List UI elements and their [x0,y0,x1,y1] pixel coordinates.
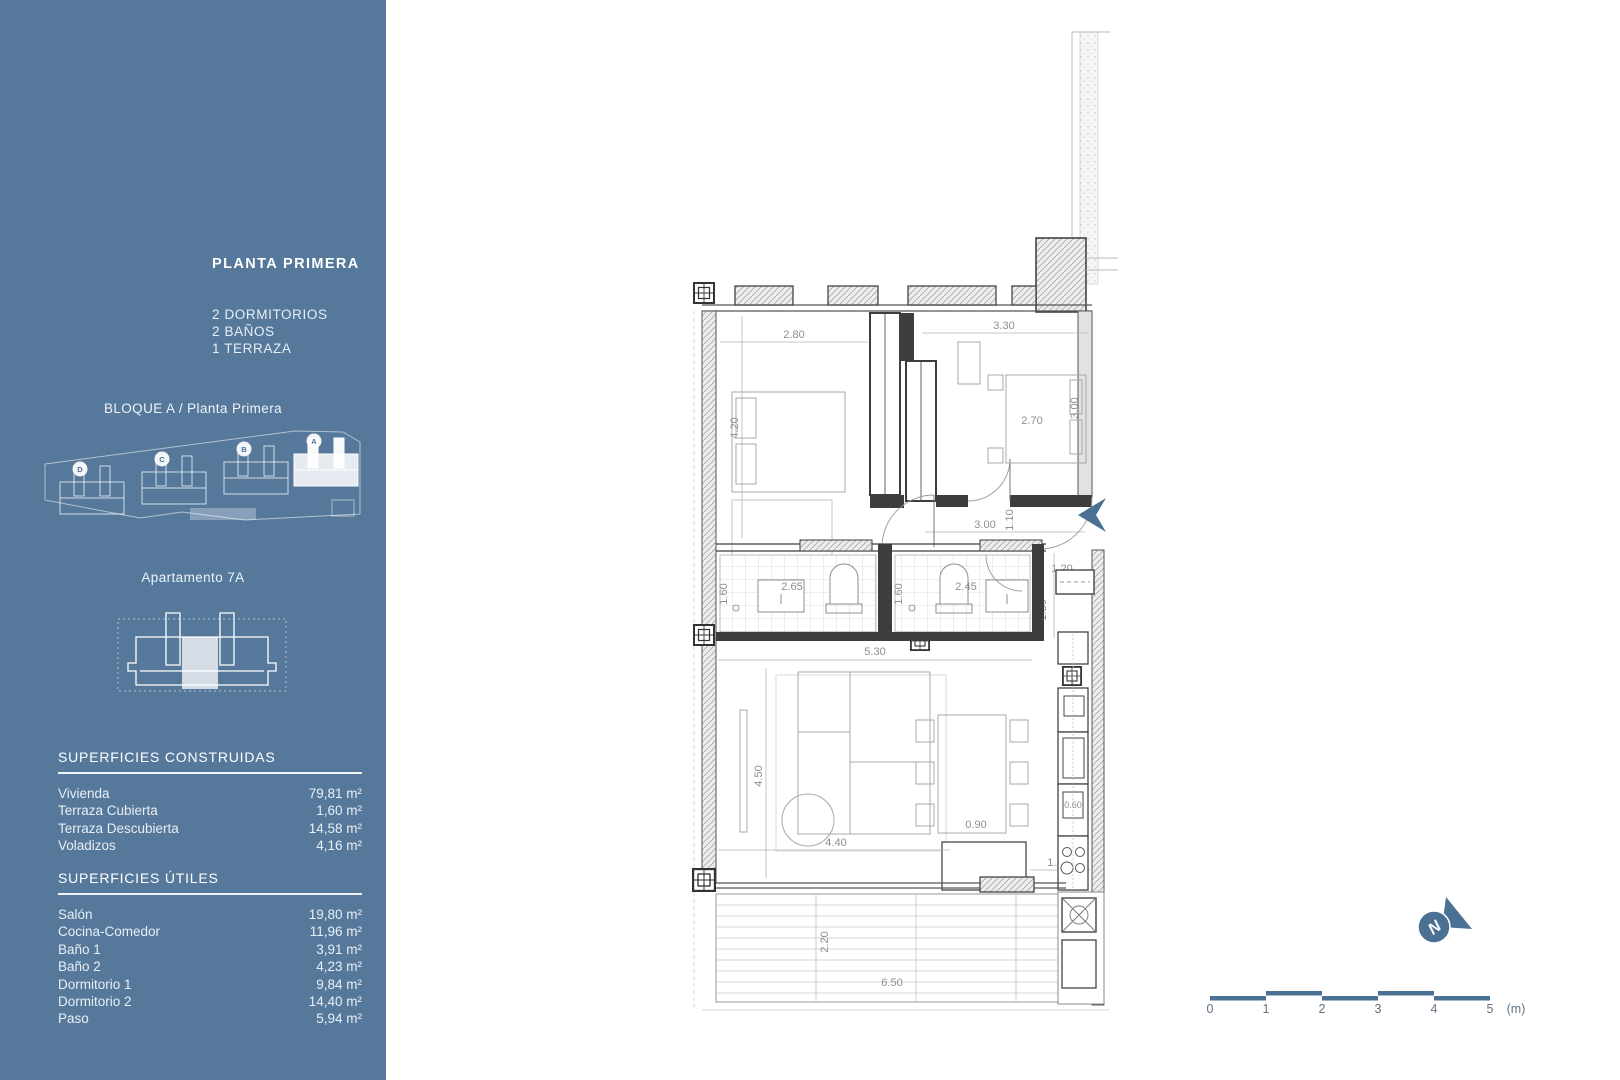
table-row: Terraza Descubierta 14,58 m² [58,820,362,837]
scale-tick: 2 [1319,1002,1326,1016]
north-compass-icon: N [1408,893,1480,955]
page-title: PLANTA PRIMERA [212,256,360,272]
dimension-label: 1.60 [893,583,905,604]
site-block-a-highlight [294,438,358,486]
highlighted-unit [182,637,218,689]
bathroom-2: 1.60 2.45 [892,540,1044,641]
rug [776,675,946,851]
scale-tick: 4 [1431,1002,1438,1016]
site-block-c [142,456,206,504]
row-label: Terraza Descubierta [58,820,179,837]
dimension-label: 6.50 [881,977,902,989]
dimension-label: 3.00 [974,519,995,531]
info-panel: PLANTA PRIMERA 2 DORMITORIOS 2 BAÑOS 1 T… [0,0,386,1080]
table-row: Baño 2 4,23 m² [58,958,362,975]
table-row: Salón 19,80 m² [58,906,362,923]
dimension-label: 4.40 [825,837,846,849]
block-label: BLOQUE A / Planta Primera [20,401,366,416]
table-row: Paso 5,94 m² [58,1010,362,1027]
table-row: Vivienda 79,81 m² [58,785,362,802]
feature-terrace: 1 TERRAZA [212,340,328,357]
site-badge-c-letter: C [159,455,165,464]
junction-box-icon [1063,667,1081,685]
row-value: 14,58 m² [309,820,362,837]
dimension-label: 2.20 [819,931,831,952]
row-value: 11,96 m² [310,923,362,940]
dimension-label: 3.00 [1069,397,1081,418]
dimension-label: 4.20 [729,417,741,438]
table-row: Cocina-Comedor 11,96 m² [58,923,362,940]
row-label: Terraza Cubierta [58,802,158,819]
apartment-label: Apartamento 7A [20,570,366,585]
sofa [798,672,930,834]
junction-box-icon [694,283,714,303]
feature-list: 2 DORMITORIOS 2 BAÑOS 1 TERRAZA [212,306,328,357]
site-key-plan: D C B A [40,420,370,528]
floor-plan: 2.80 4.20 [680,20,1140,1015]
site-annex [332,500,354,516]
scale-tick: 3 [1375,1002,1382,1016]
dimension-label: 2.45 [955,581,976,593]
toilet [830,564,858,604]
door-arc [968,459,1010,501]
scale-bar: 0 1 2 3 4 5 (m) [1210,988,1530,1018]
surfaces-useful-section: SUPERFICIES ÚTILES Salón 19,80 m² Cocina… [58,870,362,1028]
site-badge-b-letter: B [241,445,247,454]
surfaces-built-heading: SUPERFICIES CONSTRUIDAS [58,749,362,774]
row-label: Voladizos [58,837,116,854]
scale-tick: 5 [1487,1002,1494,1016]
scale-tick: 0 [1207,1002,1214,1016]
junction-box-icon [694,625,714,645]
dimension-label: 4.50 [753,765,765,786]
scale-tick: 1 [1263,1002,1270,1016]
row-value: 4,16 m² [316,837,362,854]
dimension-label: 2.80 [783,329,804,341]
row-label: Baño 2 [58,958,101,975]
dimension-label: 0.90 [965,819,986,831]
bedroom-2: 3.30 2.70 3.00 [922,320,1092,507]
dimension-label: 0.60 [1064,800,1082,810]
scale-unit: (m) [1507,1002,1526,1016]
row-label: Dormitorio 2 [58,993,132,1010]
feature-bedrooms: 2 DORMITORIOS [212,306,328,323]
terrace: 2.20 6.50 [702,877,1110,1010]
surfaces-useful-table: Salón 19,80 m² Cocina-Comedor 11,96 m² B… [58,906,362,1028]
feature-bathrooms: 2 BAÑOS [212,323,328,340]
dimension-label: 1.10 [1004,509,1016,530]
scale-bar-segments [1210,988,1524,1002]
wardrobe-partition [870,313,936,508]
apartment-key-plan [110,593,295,698]
scale-labels: 0 1 2 3 4 5 (m) [1210,1002,1524,1018]
row-label: Vivienda [58,785,110,802]
row-label: Paso [58,1010,89,1027]
surfaces-built-section: SUPERFICIES CONSTRUIDAS Vivienda 79,81 m… [58,749,362,855]
dimension-label: 3.30 [993,320,1014,332]
terrace-pillar [980,877,1034,892]
row-value: 9,84 m² [316,976,362,993]
dimension-label: 1.60 [718,583,730,604]
site-block-d [60,466,124,514]
row-label: Baño 1 [58,941,101,958]
floorplan-page: PLANTA PRIMERA 2 DORMITORIOS 2 BAÑOS 1 T… [0,0,1620,1080]
dimension-label: 5.30 [864,646,885,658]
table-row: Voladizos 4,16 m² [58,837,362,854]
living-room: 5.30 4.50 0.90 4.40 1.20 [718,646,1090,890]
table-row: Dormitorio 1 9,84 m² [58,976,362,993]
table-row: Dormitorio 2 14,40 m² [58,993,362,1010]
row-value: 3,91 m² [316,941,362,958]
dimension-label: 2.65 [781,581,802,593]
row-value: 1,60 m² [316,802,362,819]
site-pool [190,508,256,520]
site-block-b [224,446,288,494]
row-label: Cocina-Comedor [58,923,160,940]
surfaces-useful-heading: SUPERFICIES ÚTILES [58,870,362,895]
stair-core-block [1036,238,1118,312]
row-value: 79,81 m² [309,785,362,802]
row-label: Salón [58,906,93,923]
site-badge-a-letter: A [311,437,317,446]
row-value: 14,40 m² [309,993,362,1010]
junction-box-icon [693,869,715,891]
table-row: Baño 1 3,91 m² [58,941,362,958]
table-row: Terraza Cubierta 1,60 m² [58,802,362,819]
laundry-area [1058,892,1104,1004]
row-value: 4,23 m² [316,958,362,975]
surfaces-built-table: Vivienda 79,81 m² Terraza Cubierta 1,60 … [58,785,362,855]
row-label: Dormitorio 1 [58,976,132,993]
row-value: 19,80 m² [309,906,362,923]
row-value: 5,94 m² [316,1010,362,1027]
dimension-label: 2.70 [1021,415,1042,427]
dining-table [916,715,1028,833]
site-badge-d-letter: D [77,465,83,474]
